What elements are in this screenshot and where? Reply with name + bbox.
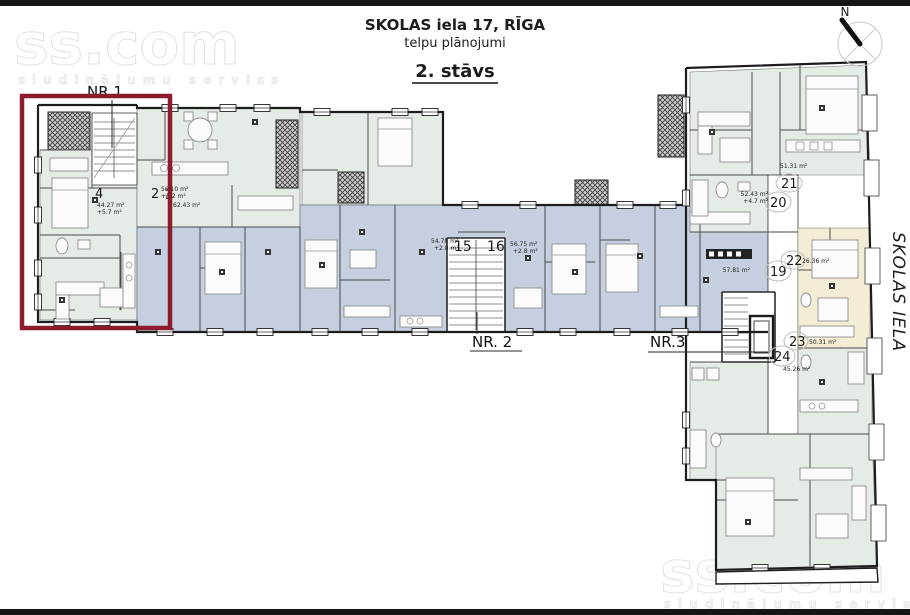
apartment-22-area: 26.36 m² <box>802 258 830 265</box>
watermark-brand: ss.com <box>14 10 240 78</box>
apartment-2-number: 2 <box>151 187 159 202</box>
balcony-hatch-nw <box>48 112 90 150</box>
apartment-20-number: 20 <box>770 196 787 211</box>
apartment-22-number: 22 <box>786 254 803 269</box>
apartment-15-extra: +2.8 m² <box>434 245 459 252</box>
compass: N <box>838 5 882 66</box>
watermark-tagline-2: sludinājumu serviss <box>664 597 910 611</box>
watermark-tagline: sludinājumu serviss <box>18 73 285 87</box>
apartment-20-extra: +4.7 m² <box>743 198 768 205</box>
balcony-hatch-mid2 <box>575 180 608 205</box>
apartment-23-number: 23 <box>789 335 806 350</box>
apartment-16-area: 56.75 m² <box>510 241 538 248</box>
balcony-hatch-apartment2 <box>276 120 298 188</box>
upper-band-rooms <box>302 112 443 205</box>
entrance-nr3-label: NR.3 <box>650 333 685 351</box>
title-subtitle: telpu plānojumi <box>404 36 505 51</box>
bottom-border-bar <box>0 609 910 615</box>
apartment-21-number: 21 <box>781 177 798 192</box>
apartment-3-area: 62.43 m² <box>173 202 201 209</box>
apartment-19-area: 57.81 m² <box>723 267 751 274</box>
apartment-16-extra: +2.8 m² <box>513 248 538 255</box>
street-name-label: SKOLAS IELA <box>888 232 908 352</box>
apartment-24-area: 45.26 m² <box>783 366 811 373</box>
apartment-19-number: 19 <box>770 265 787 280</box>
apartment-20-area: 52.43 m² <box>741 191 769 198</box>
floorplan-svg: ss.com sludinājumu serviss ss.com sludin… <box>0 0 910 615</box>
apartment-23-area: 50.31 m² <box>809 339 837 346</box>
balcony-hatch-mid <box>338 172 364 203</box>
apartment-4-extra: +5.7 m² <box>97 209 122 216</box>
apartment-4-number: 4 <box>95 187 103 202</box>
title-floor: 2. stāvs <box>415 61 495 82</box>
apartment-21-area: 51.31 m² <box>780 163 808 170</box>
title-block: SKOLAS iela 17, RĪGA telpu plānojumi 2. … <box>365 14 546 83</box>
title-address: SKOLAS iela 17, RĪGA <box>365 14 546 34</box>
entrance-nr1-label: NR 1 <box>87 83 123 101</box>
apartment-15-area: 54.78 m² <box>431 238 459 245</box>
apartment-24-number: 24 <box>774 350 791 365</box>
top-border-bar <box>0 0 910 6</box>
floorplan-image: ss.com sludinājumu serviss ss.com sludin… <box>0 0 910 615</box>
stairwell-nr1 <box>92 113 137 185</box>
north-label: N <box>841 5 850 19</box>
entrance-nr2-label: NR. 2 <box>472 333 512 351</box>
balcony-hatch-rightwing <box>658 95 684 157</box>
apartment-4-area: 44.27 m² <box>97 202 125 209</box>
apartment-16-number: 16 <box>487 239 505 255</box>
watermark-top-left: ss.com sludinājumu serviss <box>14 10 285 87</box>
